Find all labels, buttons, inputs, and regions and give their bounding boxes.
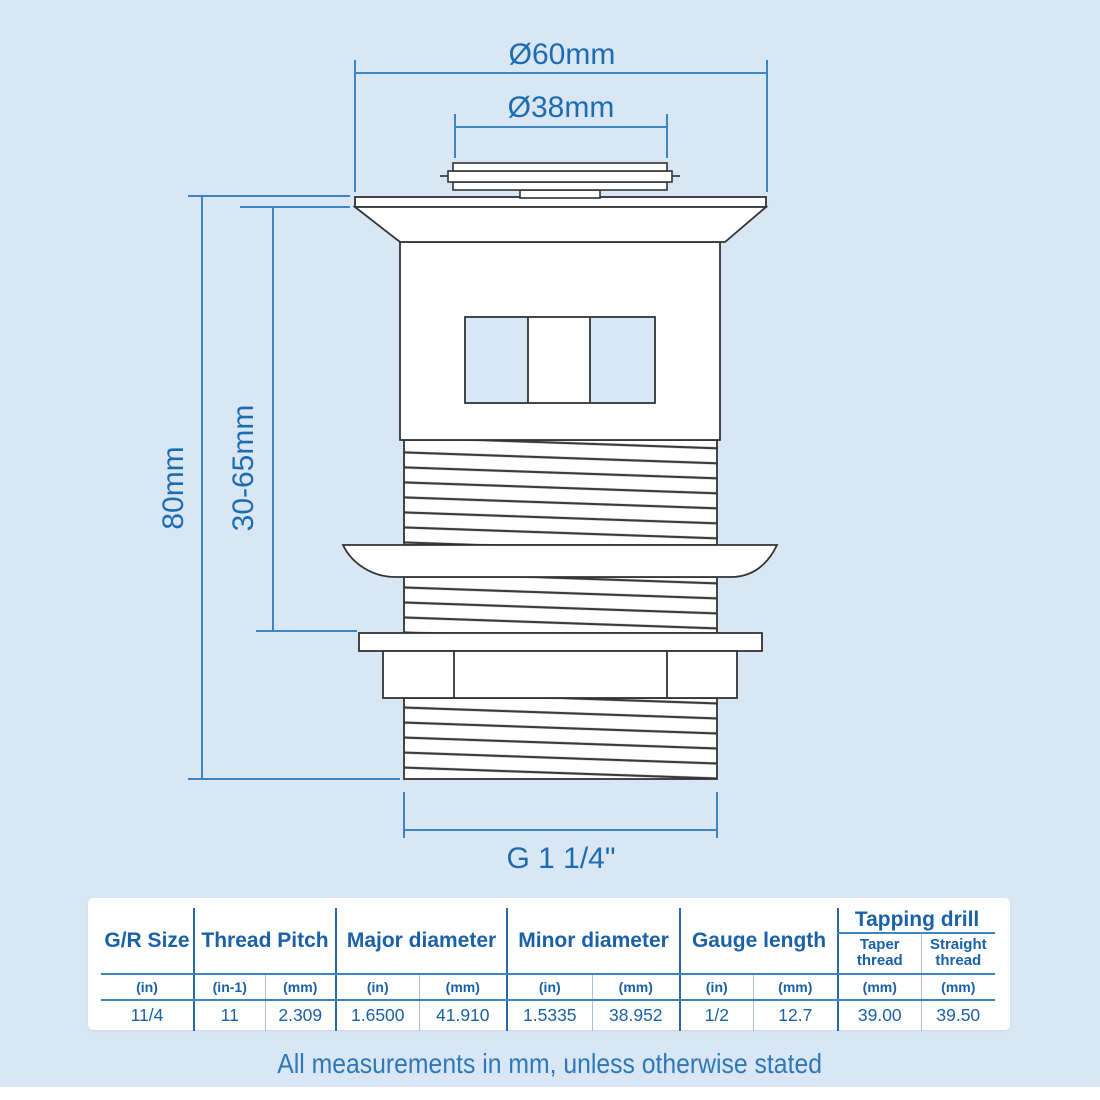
footer-note-text: All measurements in mm, unless otherwise… (278, 1048, 823, 1080)
value-cell: 1.6500 (336, 1000, 419, 1031)
dimension-thread-size (404, 792, 717, 838)
unit-cell: (in) (336, 974, 419, 1000)
unit-cell: (mm) (753, 974, 838, 1000)
value-cell: 39.50 (921, 1000, 995, 1031)
bottom-white-strip (0, 1087, 1100, 1100)
sealing-washer (343, 545, 777, 577)
thread-upper-band (404, 440, 717, 545)
unit-cell: (mm) (265, 974, 336, 1000)
col-header-straight-thread: Straight thread (921, 933, 995, 974)
unit-cell: (mm) (838, 974, 921, 1000)
backnut (359, 633, 762, 698)
label-overall-height: 80mm (157, 446, 190, 529)
unit-cell: (in) (101, 974, 194, 1000)
label-clamp-range: 30-65mm (227, 405, 260, 532)
values-row: 11/4 11 2.309 1.6500 41.910 1.5335 38.95… (101, 1000, 995, 1031)
col-header-major-diameter: Major diameter (336, 908, 507, 974)
col-header-taper-thread: Taper thread (838, 933, 921, 974)
technical-drawing: Ø60mm Ø38mm 80mm 30-65mm G 1 1/4" (0, 0, 1100, 880)
value-cell: 11 (194, 1000, 265, 1031)
basin-waste-spec-infographic: Ø60mm Ø38mm 80mm 30-65mm G 1 1/4" (0, 0, 1100, 1100)
value-cell: 2.309 (265, 1000, 336, 1031)
value-cell: 12.7 (753, 1000, 838, 1031)
unit-cell: (in) (680, 974, 753, 1000)
spec-table-panel: G/R Size Thread Pitch Major diameter Min… (88, 898, 1010, 1030)
unit-cell: (in-1) (194, 974, 265, 1000)
col-header-gauge-length: Gauge length (680, 908, 838, 974)
unit-cell: (mm) (592, 974, 680, 1000)
value-cell: 11/4 (101, 1000, 194, 1031)
col-header-gr-size: G/R Size (101, 908, 194, 974)
unit-cell: (mm) (419, 974, 507, 1000)
overflow-slots (465, 317, 655, 403)
col-header-thread-pitch: Thread Pitch (194, 908, 336, 974)
col-header-minor-diameter: Minor diameter (507, 908, 680, 974)
thread-spec-table: G/R Size Thread Pitch Major diameter Min… (101, 908, 995, 1031)
footer-note: All measurements in mm, unless otherwise… (0, 1042, 1100, 1086)
value-cell: 38.952 (592, 1000, 680, 1031)
dimension-overall-height (188, 196, 400, 779)
unit-cell: (mm) (921, 974, 995, 1000)
value-cell: 1.5335 (507, 1000, 592, 1031)
thread-middle-band (404, 577, 717, 633)
stopper-plug (440, 163, 680, 198)
value-cell: 41.910 (419, 1000, 507, 1031)
value-cell: 39.00 (838, 1000, 921, 1031)
thread-lower-band (404, 698, 717, 779)
units-row: (in) (in-1) (mm) (in) (mm) (in) (mm) (in… (101, 974, 995, 1000)
waste-body (400, 242, 720, 440)
unit-cell: (in) (507, 974, 592, 1000)
label-inner-diameter: Ø38mm (508, 91, 615, 124)
value-cell: 1/2 (680, 1000, 753, 1031)
top-flange (355, 197, 766, 242)
col-header-tapping-drill: Tapping drill (838, 908, 995, 933)
label-outer-diameter: Ø60mm (509, 38, 616, 71)
label-thread-size: G 1 1/4" (506, 842, 615, 875)
